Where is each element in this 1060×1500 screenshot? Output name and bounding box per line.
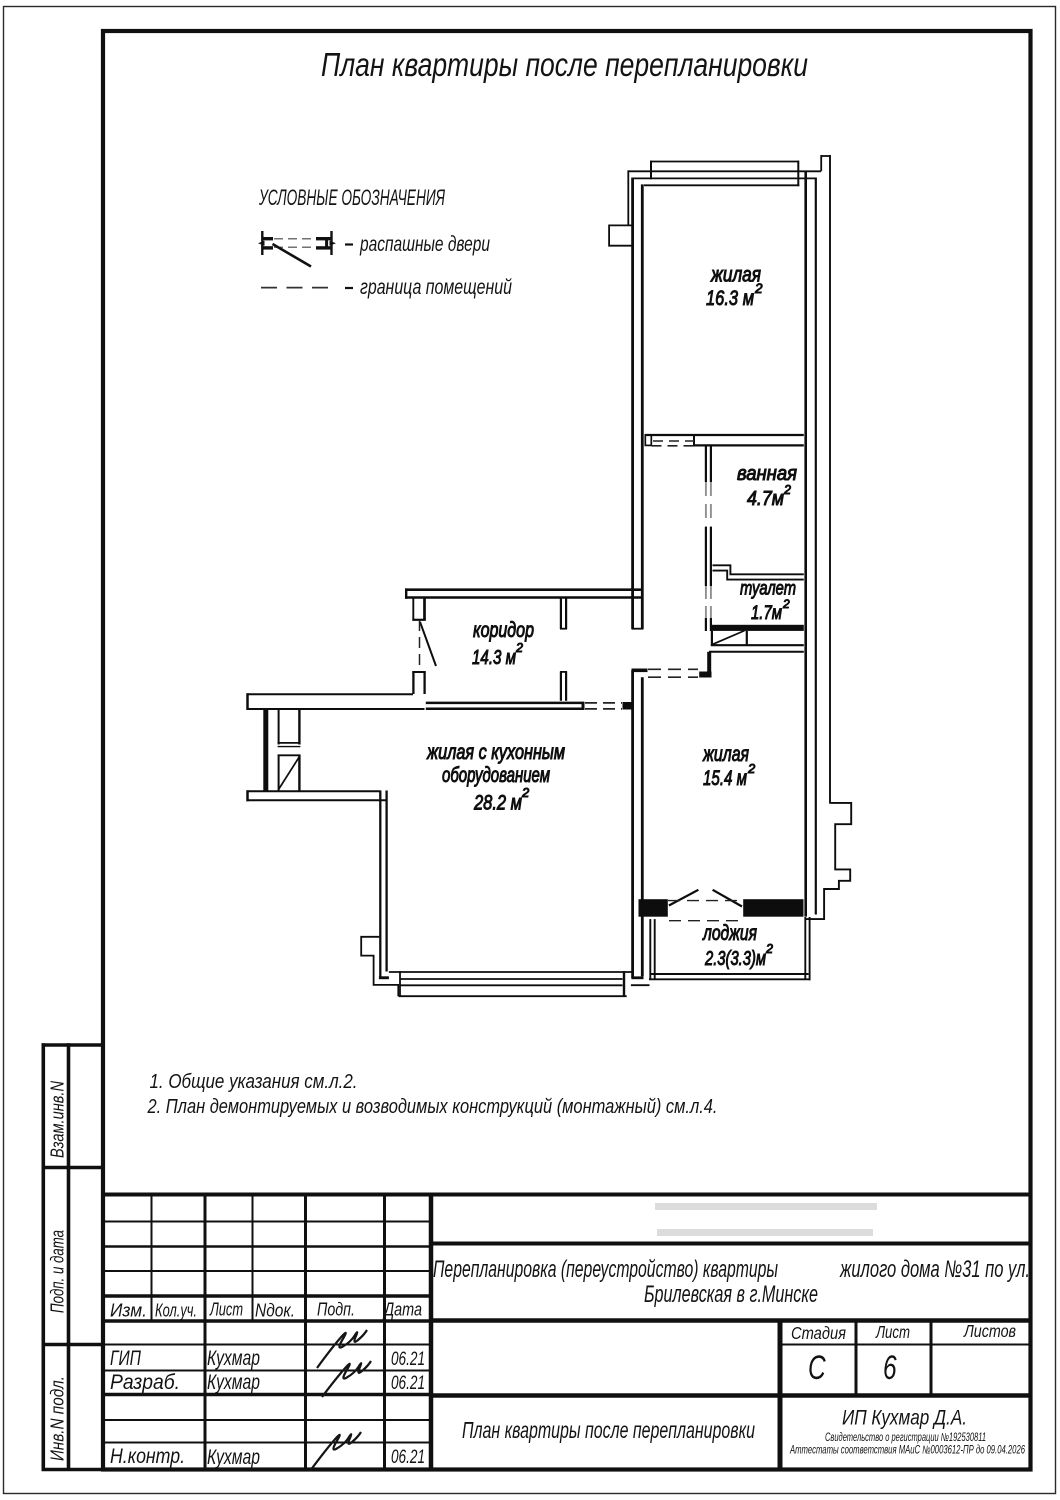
svg-text:УСЛОВНЫЕ ОБОЗНАЧЕНИЯ: УСЛОВНЫЕ ОБОЗНАЧЕНИЯ [258, 185, 445, 210]
svg-text:Дата: Дата [382, 1299, 422, 1320]
svg-text:4.7м: 4.7м [747, 488, 784, 510]
svg-text:15.4 м: 15.4 м [703, 767, 747, 790]
svg-text:1.7м: 1.7м [751, 602, 782, 624]
svg-text:2: 2 [754, 281, 763, 296]
svg-text:2: 2 [782, 597, 790, 611]
svg-text:Взам.инв.N: Взам.инв.N [47, 1080, 68, 1158]
svg-text:16.3 м: 16.3 м [706, 286, 754, 310]
svg-text:Подп.: Подп. [317, 1299, 355, 1320]
svg-text:Брилевская в г.Минске: Брилевская в г.Минске [644, 1281, 818, 1308]
svg-text:Изм.: Изм. [110, 1300, 147, 1321]
svg-text:Аттестаты соответствия МАиС №0: Аттестаты соответствия МАиС №0003612-ПР … [789, 1445, 1025, 1457]
svg-text:ГИП: ГИП [110, 1346, 141, 1370]
svg-text:Подп. и дата: Подп. и дата [47, 1230, 68, 1313]
svg-text:Кухмар: Кухмар [207, 1445, 260, 1469]
svg-text:жилая: жилая [710, 264, 761, 287]
svg-text:оборудованием: оборудованием [442, 764, 550, 787]
svg-text:2: 2 [747, 761, 756, 776]
svg-text:ванная: ванная [737, 463, 797, 485]
svg-text:2: 2 [783, 483, 791, 497]
svg-text:ИП Кухмар Д.А.: ИП Кухмар Д.А. [842, 1406, 967, 1430]
svg-text:жилая: жилая [702, 743, 749, 766]
svg-text:Nдок.: Nдок. [255, 1300, 295, 1321]
svg-text:План квартиры после перепланир: План квартиры после перепланировки [462, 1417, 755, 1443]
svg-text:Листов: Листов [963, 1321, 1016, 1341]
svg-text:06.21: 06.21 [391, 1447, 425, 1468]
svg-text:граница помещений: граница помещений [360, 276, 512, 299]
svg-text:14.3 м: 14.3 м [472, 646, 516, 669]
svg-text:Лист: Лист [875, 1322, 910, 1342]
svg-text:Кухмар: Кухмар [207, 1370, 260, 1394]
svg-text:Кол.уч.: Кол.уч. [155, 1300, 197, 1321]
svg-text:Инв.N подл.: Инв.N подл. [47, 1376, 68, 1461]
svg-text:Свидетельство о регистрации №1: Свидетельство о регистрации №192530811 [825, 1432, 986, 1444]
svg-text:Разраб.: Разраб. [110, 1370, 180, 1394]
svg-text:2: 2 [521, 785, 530, 800]
svg-text:Лист: Лист [209, 1299, 243, 1320]
svg-text:С: С [808, 1349, 826, 1387]
svg-text:Стадия: Стадия [791, 1323, 846, 1343]
svg-text:жилого дома №31 по ул.: жилого дома №31 по ул. [839, 1256, 1030, 1283]
svg-text:лоджия: лоджия [702, 922, 757, 945]
svg-text:28.2 м: 28.2 м [473, 792, 522, 815]
svg-text:2. План демонтируемых и возвод: 2. План демонтируемых и возводимых конст… [147, 1095, 718, 1118]
svg-text:2: 2 [515, 641, 523, 655]
svg-text:План квартиры после перепланир: План квартиры после перепланировки [321, 47, 808, 84]
svg-text:1. Общие указания см.л.2.: 1. Общие указания см.л.2. [150, 1070, 358, 1093]
svg-text:распашные двери: распашные двери [359, 233, 490, 256]
svg-text:2: 2 [765, 942, 773, 956]
svg-text:Перепланировка (переустройство: Перепланировка (переустройство) квартиры [433, 1256, 778, 1283]
svg-text:6: 6 [883, 1349, 897, 1387]
svg-text:коридор: коридор [473, 619, 534, 642]
svg-text:2.3(3.3)м: 2.3(3.3)м [704, 948, 766, 970]
svg-text:Кухмар: Кухмар [207, 1346, 260, 1370]
svg-text:06.21: 06.21 [391, 1373, 425, 1394]
svg-text:06.21: 06.21 [391, 1349, 425, 1370]
svg-text:Н.контр.: Н.контр. [110, 1444, 185, 1468]
svg-text:жилая с кухонным: жилая с кухонным [426, 741, 565, 764]
